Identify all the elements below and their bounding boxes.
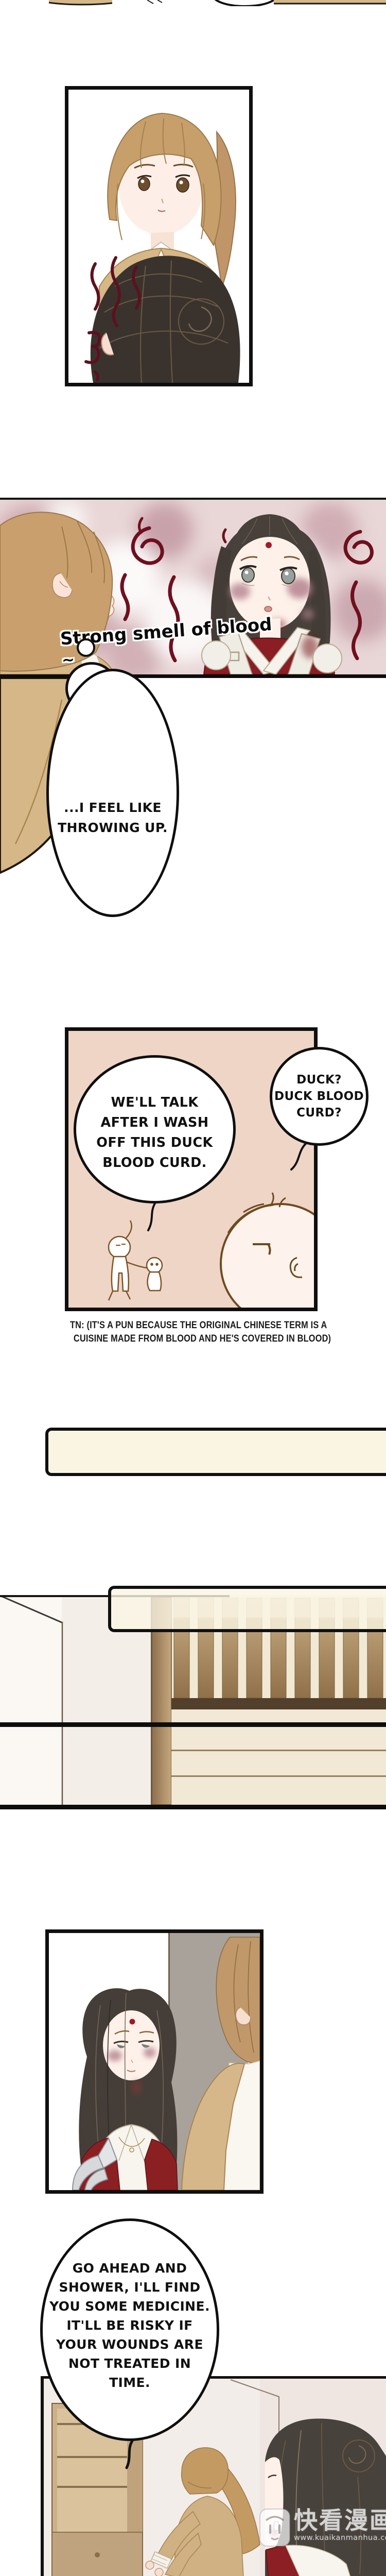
bubble-line: IT'LL BE RISKY IF [66, 2316, 192, 2335]
bubble-line: BLOOD CURD. [102, 1153, 207, 1173]
bubble-line: DUCK BLOOD [274, 1088, 364, 1105]
tn-line: TN: (IT'S A PUN BECAUSE THE ORIGINAL CHI… [70, 1319, 331, 1332]
cream-bar-1 [45, 1428, 386, 1476]
top-cutoff-strip [0, 0, 386, 6]
bubble-line: WE'LL TALK [111, 1093, 199, 1113]
chibi-woman-dragging-child [109, 1221, 162, 1300]
tn-line: CUISINE MADE FROM BLOOD AND HE'S COVERED… [70, 1332, 331, 1346]
bubble-line: THROWING UP. [58, 818, 168, 838]
speech-bubble-feel-like: ...I FEEL LIKE THROWING UP. [46, 669, 179, 917]
panel-1-artwork [68, 90, 249, 383]
bubble-line: OFF THIS DUCK [96, 1133, 213, 1153]
dark-haired-girl-foreground [265, 2418, 386, 2576]
bubble-line: TIME. [109, 2373, 150, 2392]
kuaikan-watermark: 快看漫画 www.kuaikanmanhua.com [259, 2507, 386, 2548]
watermark-url: www.kuaikanmanhua.com [294, 2534, 386, 2542]
chibi-annoyed-boy-head [221, 1193, 314, 1308]
panel-1 [65, 86, 253, 386]
bubble-tail [289, 1142, 311, 1172]
bubble-line: GO AHEAD AND [73, 2259, 187, 2278]
speech-bubble-wash-duck: WE'LL TALK AFTER I WASH OFF THIS DUCK BL… [74, 1055, 236, 1204]
panel-4-bottom-border [0, 1805, 386, 1809]
kuaikan-logo [259, 2507, 291, 2548]
bubble-line: SHOWER, I'LL FIND [59, 2278, 200, 2297]
sfx-smell-tail: ~ [61, 651, 75, 670]
bloodied-girl-front [73, 1988, 178, 2190]
manhua-page: Strong smell of blood ~ ...I FEEL LIKE T… [0, 0, 386, 2576]
bubble-line: ...I FEEL LIKE [64, 798, 162, 818]
speech-bubble-duck-question: DUCK? DUCK BLOOD CURD? [270, 1047, 369, 1146]
bubble-line: YOUR WOUNDS ARE [56, 2335, 203, 2354]
sill-line [0, 1722, 386, 1727]
panel-5-artwork [49, 1933, 260, 2190]
thought-dot [77, 638, 95, 657]
bubble-line: CURD? [296, 1105, 342, 1121]
cream-bar-2 [108, 1586, 386, 1632]
panel-5 [45, 1929, 264, 2194]
speech-bubble-shower: GO AHEAD AND SHOWER, I'LL FIND YOU SOME … [40, 2218, 219, 2441]
bubble-line: NOT TREATED IN [68, 2354, 191, 2373]
cutoff-bubble [213, 0, 277, 6]
bubble-line: AFTER I WASH [100, 1113, 208, 1133]
bubble-tail [145, 1201, 161, 1232]
bubble-line: YOU SOME MEDICINE. [49, 2297, 210, 2316]
bubble-tail [124, 2439, 140, 2470]
translator-note: TN: (IT'S A PUN BECAUSE THE ORIGINAL CHI… [70, 1319, 331, 1346]
lattice-rail [171, 1698, 386, 1709]
ponytail-character-searching [146, 2448, 260, 2576]
watermark-brand: 快看漫画 [294, 2507, 386, 2534]
bubble-line: DUCK? [296, 1072, 342, 1088]
